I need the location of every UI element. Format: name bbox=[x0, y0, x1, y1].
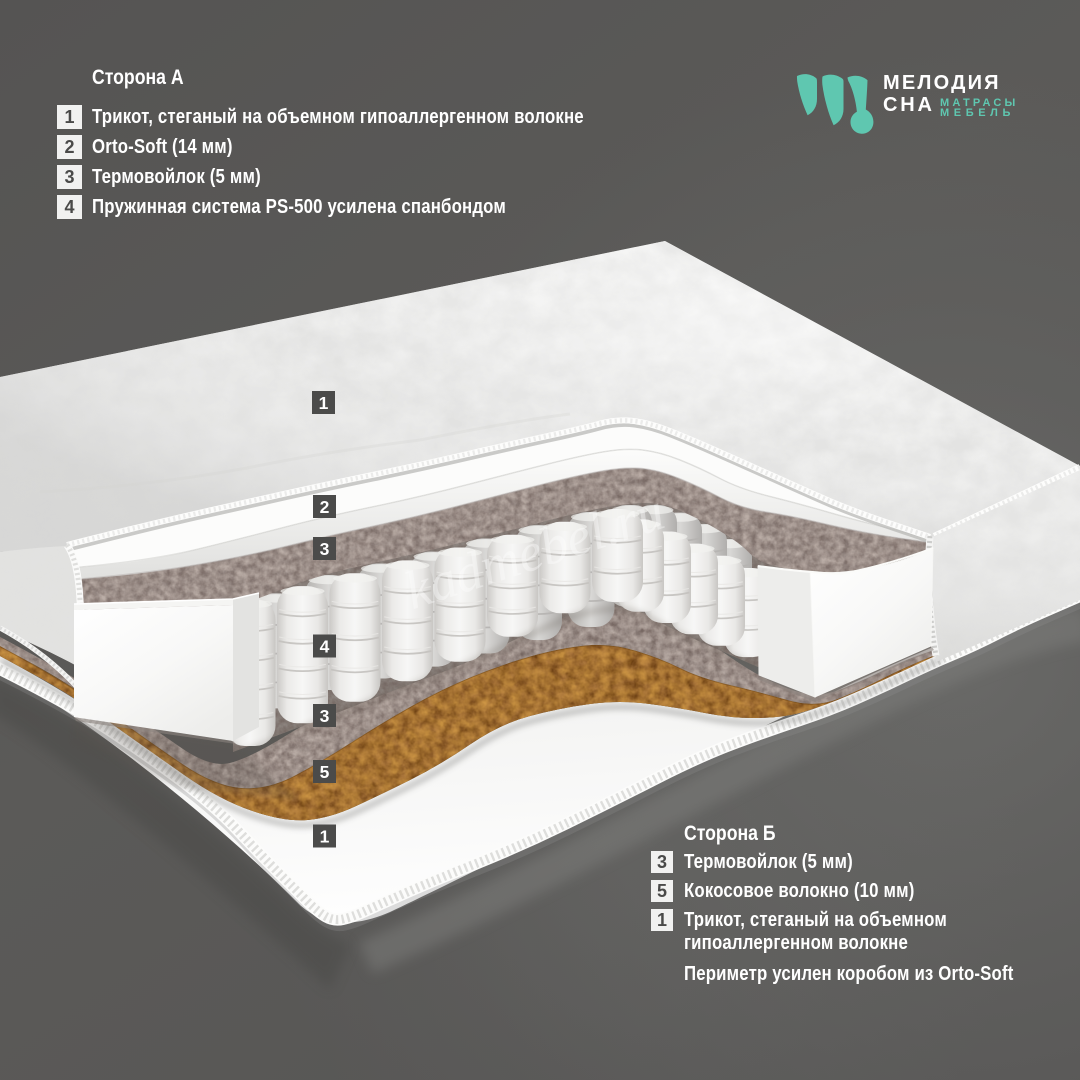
svg-text:4: 4 bbox=[320, 637, 330, 657]
svg-text:5: 5 bbox=[320, 762, 330, 782]
svg-text:3: 3 bbox=[320, 539, 330, 559]
svg-text:2: 2 bbox=[320, 497, 330, 517]
svg-text:1: 1 bbox=[319, 393, 329, 413]
svg-text:3: 3 bbox=[320, 706, 330, 726]
svg-text:1: 1 bbox=[320, 827, 330, 847]
